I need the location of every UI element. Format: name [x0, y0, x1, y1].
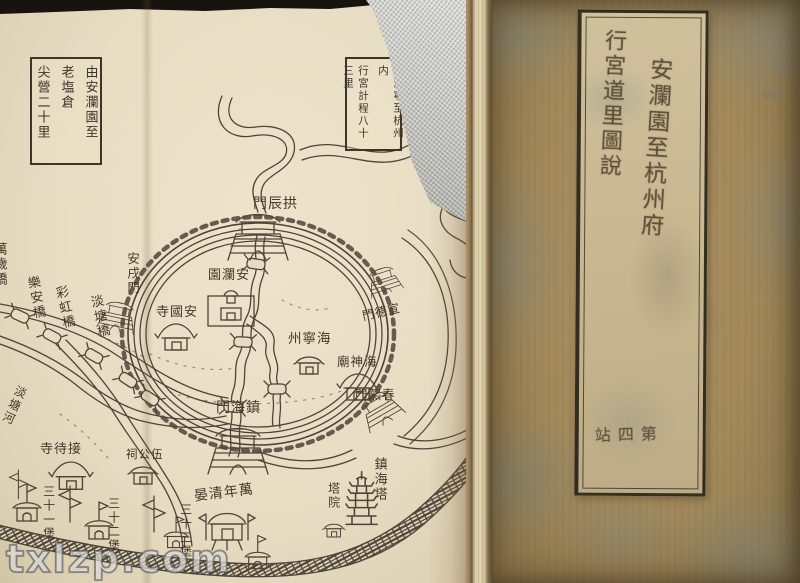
- map-page: 由安瀾園至 老塩倉 尖營二十里 自海寧至杭州内 行宮計程八十三里 門辰拱 安戌門…: [0, 0, 480, 583]
- flag-marker: [10, 470, 28, 499]
- flag-marker: [59, 486, 81, 522]
- label-zhenhai-gate: 門海鎮: [216, 401, 261, 416]
- distance-box-left-col3: 尖營二十里: [33, 65, 52, 157]
- label-haishen-temple: 廟神海: [337, 355, 378, 368]
- fort-31-symbol: [13, 484, 41, 521]
- distance-box-left-col2: 老塩倉: [57, 65, 76, 157]
- page-block-edge: [466, 0, 492, 583]
- pencil-note-1: 82: [774, 57, 791, 73]
- anguo-temple-symbol: [155, 324, 197, 350]
- label-anlan-garden: 園瀾安: [208, 269, 250, 283]
- scanned-book-photo: 由安瀾園至 老塩倉 尖營二十里 自海寧至杭州内 行宮計程八十三里 門辰拱 安戌門…: [0, 0, 800, 583]
- north-gate-tower: [228, 215, 288, 261]
- label-jiedai-temple: 寺待接: [40, 443, 82, 457]
- anlan-garden-symbol: [208, 291, 254, 326]
- distance-box-left: 由安瀾園至 老塩倉 尖營二十里: [30, 57, 102, 165]
- distance-box-right-col2: 行宮計程八十三里: [341, 65, 371, 143]
- label-pagoda-yard: 塔院: [327, 482, 340, 510]
- pencil-note-2: gm: [763, 87, 782, 101]
- page-fold-crease: [141, 0, 153, 583]
- distance-box-left-col1: 由安瀾園至: [81, 65, 100, 157]
- label-wansui-bridge: 萬歲橋: [0, 242, 6, 287]
- pagoda-yard-symbol: [323, 524, 346, 537]
- label-haining-prefecture: 州寧海: [288, 332, 332, 346]
- label-anguo-temple: 寺國安: [156, 306, 198, 320]
- label-zhenhai-pagoda: 鎮海塔: [372, 457, 386, 502]
- cover-title-label: 安瀾園至杭州府 行宮道里圖說 站四第: [574, 10, 708, 497]
- haining-office-symbol: [294, 357, 324, 374]
- book-cover: 安瀾園至杭州府 行宮道里圖說 站四第 82 gm: [492, 0, 800, 583]
- label-fort-31: 三十一堡: [42, 485, 55, 541]
- label-chunxi-gate: 門熙春: [355, 388, 396, 401]
- cover-volume-mark: 站四第: [594, 420, 664, 446]
- site-watermark: txlzp.com: [6, 537, 232, 581]
- label-gongchen-gate: 門辰拱: [253, 197, 298, 212]
- label-anshu-gate: 安戌門: [126, 252, 139, 296]
